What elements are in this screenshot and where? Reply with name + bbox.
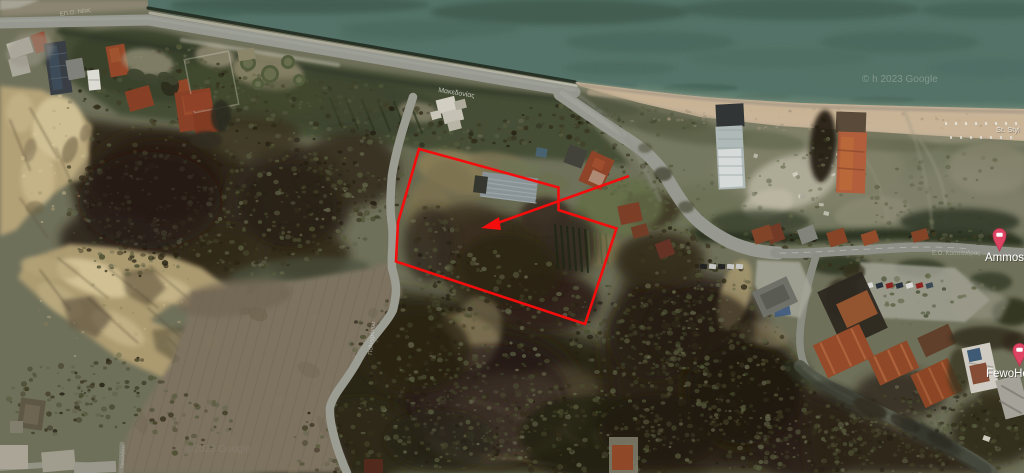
svg-text:Ε.Ο. Κασσάνδρας: Ε.Ο. Κασσάνδρας (932, 250, 980, 257)
svg-text:© h 2023 Google: © h 2023 Google (862, 74, 938, 85)
svg-text:Νικολάου: Νικολάου (119, 445, 127, 468)
svg-text:St. Styl: St. Styl (996, 125, 1020, 134)
svg-text:©2023 Google: ©2023 Google (186, 444, 251, 455)
svg-text:Ammos L: Ammos L (985, 252, 1024, 264)
svg-text:FewoHell: FewoHell (986, 368, 1024, 380)
